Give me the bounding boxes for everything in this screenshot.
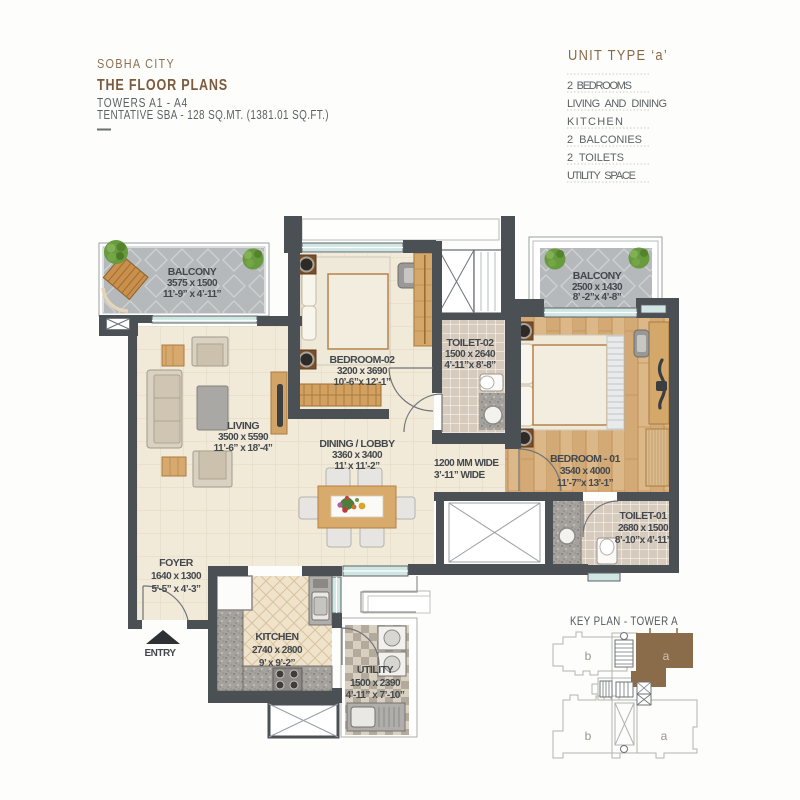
svg-text:3575 x 1500: 3575 x 1500 xyxy=(167,278,218,289)
svg-text:LIVING: LIVING xyxy=(227,420,259,432)
svg-text:KEY PLAN - TOWER A: KEY PLAN - TOWER A xyxy=(570,614,678,628)
svg-text:11’-9” x 4’-11”: 11’-9” x 4’-11” xyxy=(163,289,222,300)
svg-text:1500 x 2640: 1500 x 2640 xyxy=(445,349,496,360)
svg-text:4’-11” x 7’-10”: 4’-11” x 7’-10” xyxy=(346,690,405,701)
svg-text:a: a xyxy=(663,649,670,663)
svg-text:BALCONY: BALCONY xyxy=(573,270,622,282)
svg-text:2 BALCONIES: 2 BALCONIES xyxy=(567,134,642,146)
svg-text:1500 x 2390: 1500 x 2390 xyxy=(350,678,401,689)
svg-text:10’-6”x 12’-1”: 10’-6”x 12’-1” xyxy=(334,377,391,388)
svg-text:1200 MM WIDE: 1200 MM WIDE xyxy=(434,458,499,469)
svg-text:8’-10”x 4’-11”: 8’-10”x 4’-11” xyxy=(615,535,672,546)
svg-text:2 BEDROOMS: 2 BEDROOMS xyxy=(567,80,632,92)
svg-text:UTILITY: UTILITY xyxy=(357,664,394,676)
svg-text:2740 x 2800: 2740 x 2800 xyxy=(252,645,303,656)
svg-text:3200 x 3690: 3200 x 3690 xyxy=(337,366,388,377)
svg-text:5’-5” x 4’-3”: 5’-5” x 4’-3” xyxy=(151,584,201,595)
svg-text:3540 x 4000: 3540 x 4000 xyxy=(560,466,611,477)
svg-text:9’ x 9’-2”: 9’ x 9’-2” xyxy=(259,658,296,669)
svg-text:2680 x 1500: 2680 x 1500 xyxy=(618,523,669,534)
svg-text:11’ x 11’-2”: 11’ x 11’-2” xyxy=(334,461,380,472)
svg-text:11’-6” x 18’-4”: 11’-6” x 18’-4” xyxy=(214,443,273,454)
svg-text:TENTATIVE SBA - 128 SQ.MT. (13: TENTATIVE SBA - 128 SQ.MT. (1381.01 SQ.F… xyxy=(97,108,329,122)
svg-text:8’ -2”x 4’-8”: 8’ -2”x 4’-8” xyxy=(573,292,622,303)
svg-text:ENTRY: ENTRY xyxy=(144,648,176,659)
svg-text:4’-11”x 8’-8”: 4’-11”x 8’-8” xyxy=(444,360,496,371)
svg-text:THE FLOOR PLANS: THE FLOOR PLANS xyxy=(97,77,228,94)
svg-text:FOYER: FOYER xyxy=(159,557,194,569)
svg-text:BALCONY: BALCONY xyxy=(168,266,217,278)
svg-text:1640 x 1300: 1640 x 1300 xyxy=(151,571,202,582)
svg-text:UTILITY SPACE: UTILITY SPACE xyxy=(567,170,636,182)
svg-text:BEDROOM - 01: BEDROOM - 01 xyxy=(550,453,621,465)
svg-text:DINING / LOBBY: DINING / LOBBY xyxy=(319,438,395,450)
svg-text:11’-7”x 13’-1”: 11’-7”x 13’-1” xyxy=(557,478,614,489)
svg-text:b: b xyxy=(585,649,592,663)
svg-text:LIVING AND DINING: LIVING AND DINING xyxy=(567,98,667,110)
svg-text:SOBHA CITY: SOBHA CITY xyxy=(97,56,175,71)
svg-text:a: a xyxy=(661,729,668,743)
svg-text:KITCHEN: KITCHEN xyxy=(567,116,623,128)
svg-text:KITCHEN: KITCHEN xyxy=(255,631,298,643)
svg-text:3’-11” WIDE: 3’-11” WIDE xyxy=(434,470,485,481)
svg-text:b: b xyxy=(585,729,592,743)
svg-text:UNIT TYPE ‘a’: UNIT TYPE ‘a’ xyxy=(568,47,668,64)
svg-text:BEDROOM-02: BEDROOM-02 xyxy=(329,354,395,366)
svg-text:3360 x 3400: 3360 x 3400 xyxy=(332,450,383,461)
svg-text:3500 x 5590: 3500 x 5590 xyxy=(218,432,269,443)
svg-text:TOILET-01: TOILET-01 xyxy=(619,510,667,522)
svg-text:2 TOILETS: 2 TOILETS xyxy=(567,152,624,164)
svg-text:TOILET-02: TOILET-02 xyxy=(446,337,494,349)
